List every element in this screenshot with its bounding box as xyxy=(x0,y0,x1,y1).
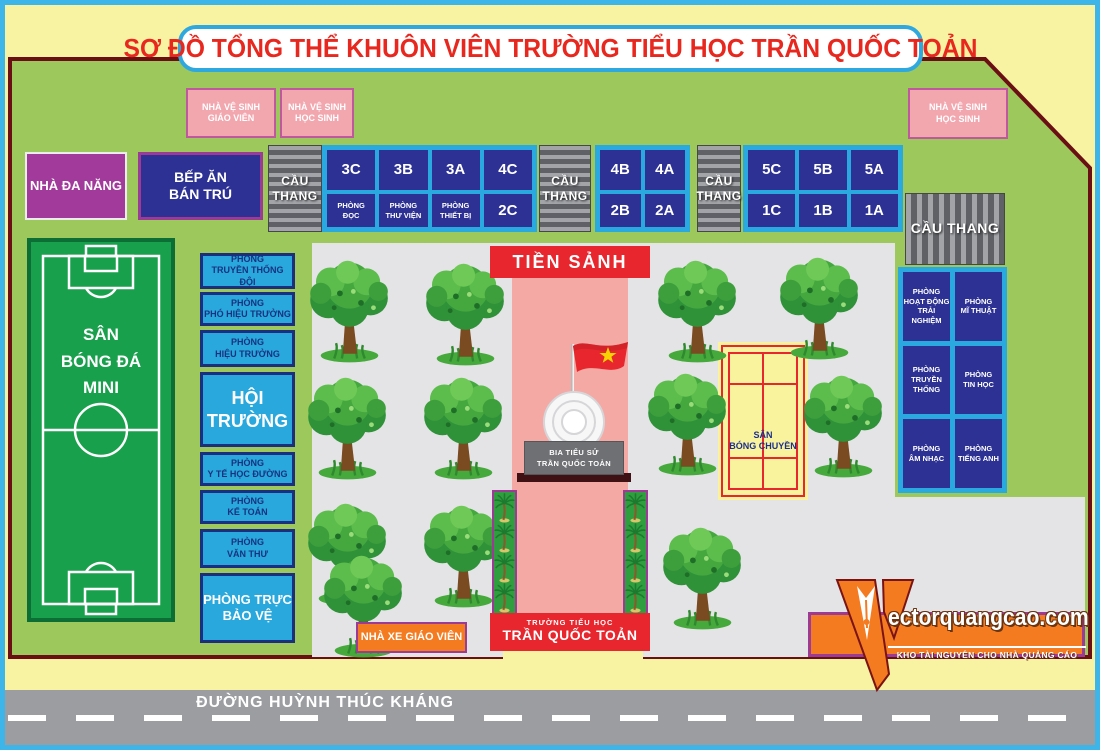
courtyard-east xyxy=(895,497,1085,612)
staircase-east: CẦU THANG xyxy=(905,193,1005,265)
road-center-line xyxy=(8,715,1092,721)
classroom-4C: 4C xyxy=(484,150,532,190)
tree xyxy=(786,370,901,485)
mini-soccer-field: SÂN BÓNG ĐÁ MINI xyxy=(27,238,175,622)
boarding-kitchen: BẾP ĂN BÁN TRÚ xyxy=(138,152,263,220)
tree xyxy=(762,252,877,367)
east-rooms-block: PHÒNG HOẠT ĐỘNG TRẢI NGHIỆM PHÒNG MĨ THU… xyxy=(898,267,1007,493)
clerical-room: PHÒNG VĂN THƯ xyxy=(200,529,295,568)
classroom-5A: 5A xyxy=(851,150,898,190)
accounting-room: PHÒNG KẾ TOÁN xyxy=(200,490,295,524)
school-medical-room: PHÒNG Y TẾ HỌC ĐƯỜNG xyxy=(200,452,295,486)
palm-row-right xyxy=(623,490,648,615)
security-guard-room: PHÒNG TRỰC BẢO VỆ xyxy=(200,573,295,643)
gate-line1: TRƯỜNG TIỂU HỌC xyxy=(490,618,650,627)
vectorquangcao-brand: ectorquangcao.com xyxy=(888,604,1073,632)
classroom-4B: 4B xyxy=(600,150,641,190)
classroom-3A: 3A xyxy=(432,150,480,190)
gate-line2: TRẦN QUỐC TOẢN xyxy=(490,627,650,645)
classroom-2C: 2C xyxy=(484,194,532,227)
staircase-2: CẦU THANG xyxy=(539,145,591,232)
map-title-box: SƠ ĐỒ TỔNG THỂ KHUÔN VIÊN TRƯỜNG TIỂU HỌ… xyxy=(178,25,923,72)
memorial-stele: BIA TIỂU SỬ TRẦN QUỐC TOẢN xyxy=(524,441,624,475)
palm-trees xyxy=(494,492,515,613)
classroom-3B: 3B xyxy=(379,150,427,190)
toilet-teachers: NHÀ VỆ SINH GIÁO VIÊN xyxy=(186,88,276,138)
classroom-1B: 1B xyxy=(799,194,846,227)
teacher-parking: NHÀ XE GIÁO VIÊN xyxy=(356,622,467,653)
vectorquangcao-tagline: KHO TÀI NGUYÊN CHO NHÀ QUẢNG CÁO xyxy=(888,646,1086,662)
music-room: PHÒNG ÂM NHẠC xyxy=(903,419,950,488)
staircase-3: CẦU THANG xyxy=(697,145,741,232)
library-room: PHÒNG THƯ VIỆN xyxy=(379,194,427,227)
vectorquangcao-logo-icon xyxy=(835,578,915,693)
palm-row-left xyxy=(492,490,517,615)
art-room: PHÒNG MĨ THUẬT xyxy=(955,272,1002,341)
tree xyxy=(640,255,755,370)
assembly-hall: HỘI TRƯỜNG xyxy=(200,372,295,447)
palm-trees xyxy=(625,492,646,613)
page-title: SƠ ĐỒ TỔNG THỂ KHUÔN VIÊN TRƯỜNG TIỂU HỌ… xyxy=(124,32,978,65)
soccer-field-label: SÂN BÓNG ĐÁ MINI xyxy=(31,312,171,412)
computer-room: PHÒNG TIN HỌC xyxy=(955,346,1002,415)
english-room: PHÒNG TIẾNG ANH xyxy=(955,419,1002,488)
gate-opening xyxy=(503,648,643,690)
toilet-students-left: NHÀ VỆ SINH HỌC SINH xyxy=(280,88,354,138)
classroom-block-3: 5C 5B 5A 1C 1B 1A xyxy=(743,145,903,232)
staircase-1: CẦU THANG xyxy=(268,145,322,232)
school-gate: TRƯỜNG TIỂU HỌC TRẦN QUỐC TOẢN xyxy=(490,613,650,651)
classroom-3C: 3C xyxy=(327,150,375,190)
toilet-students-right: NHÀ VỆ SINH HỌC SINH xyxy=(908,88,1008,139)
soccer-field-markings xyxy=(31,242,171,618)
classroom-2B: 2B xyxy=(600,194,641,227)
road: ĐƯỜNG HUỲNH THÚC KHÁNG xyxy=(0,690,1100,745)
classroom-5B: 5B xyxy=(799,150,846,190)
classroom-2A: 2A xyxy=(645,194,686,227)
front-hall-banner: TIỀN SẢNH xyxy=(490,246,650,278)
classroom-1C: 1C xyxy=(748,194,795,227)
principal-room: PHÒNG HIỆU TRƯỞNG xyxy=(200,330,295,367)
classroom-5C: 5C xyxy=(748,150,795,190)
classroom-4A: 4A xyxy=(645,150,686,190)
multi-purpose-hall: NHÀ ĐA NĂNG xyxy=(25,152,127,220)
vietnam-flag xyxy=(572,336,630,380)
tree xyxy=(290,372,405,487)
tree xyxy=(406,372,521,487)
tree xyxy=(292,255,407,370)
road-name: ĐƯỜNG HUỲNH THÚC KHÁNG xyxy=(170,694,480,712)
classroom-block-2: 4B 4A 2B 2A xyxy=(595,145,690,232)
classroom-block-1: 3C 3B 3A 4C PHÒNG ĐỌC PHÒNG THƯ VIỆN PHÒ… xyxy=(322,145,537,232)
classroom-1A: 1A xyxy=(851,194,898,227)
equipment-room: PHÒNG THIẾT BỊ xyxy=(432,194,480,227)
tradition-room: PHÒNG TRUYỀN THỐNG xyxy=(903,346,950,415)
vice-principal-room: PHÒNG PHÓ HIỆU TRƯỞNG xyxy=(200,292,295,326)
tree xyxy=(630,368,745,483)
tree xyxy=(645,522,760,637)
campus-map: ĐƯỜNG HUỲNH THÚC KHÁNG SƠ ĐỒ TỔNG THỂ KH… xyxy=(0,0,1100,750)
reading-room: PHÒNG ĐỌC xyxy=(327,194,375,227)
young-pioneer-tradition-room: PHÒNG TRUYỀN THỐNG ĐỘI xyxy=(200,253,295,289)
experience-activities-room: PHÒNG HOẠT ĐỘNG TRẢI NGHIỆM xyxy=(903,272,950,341)
